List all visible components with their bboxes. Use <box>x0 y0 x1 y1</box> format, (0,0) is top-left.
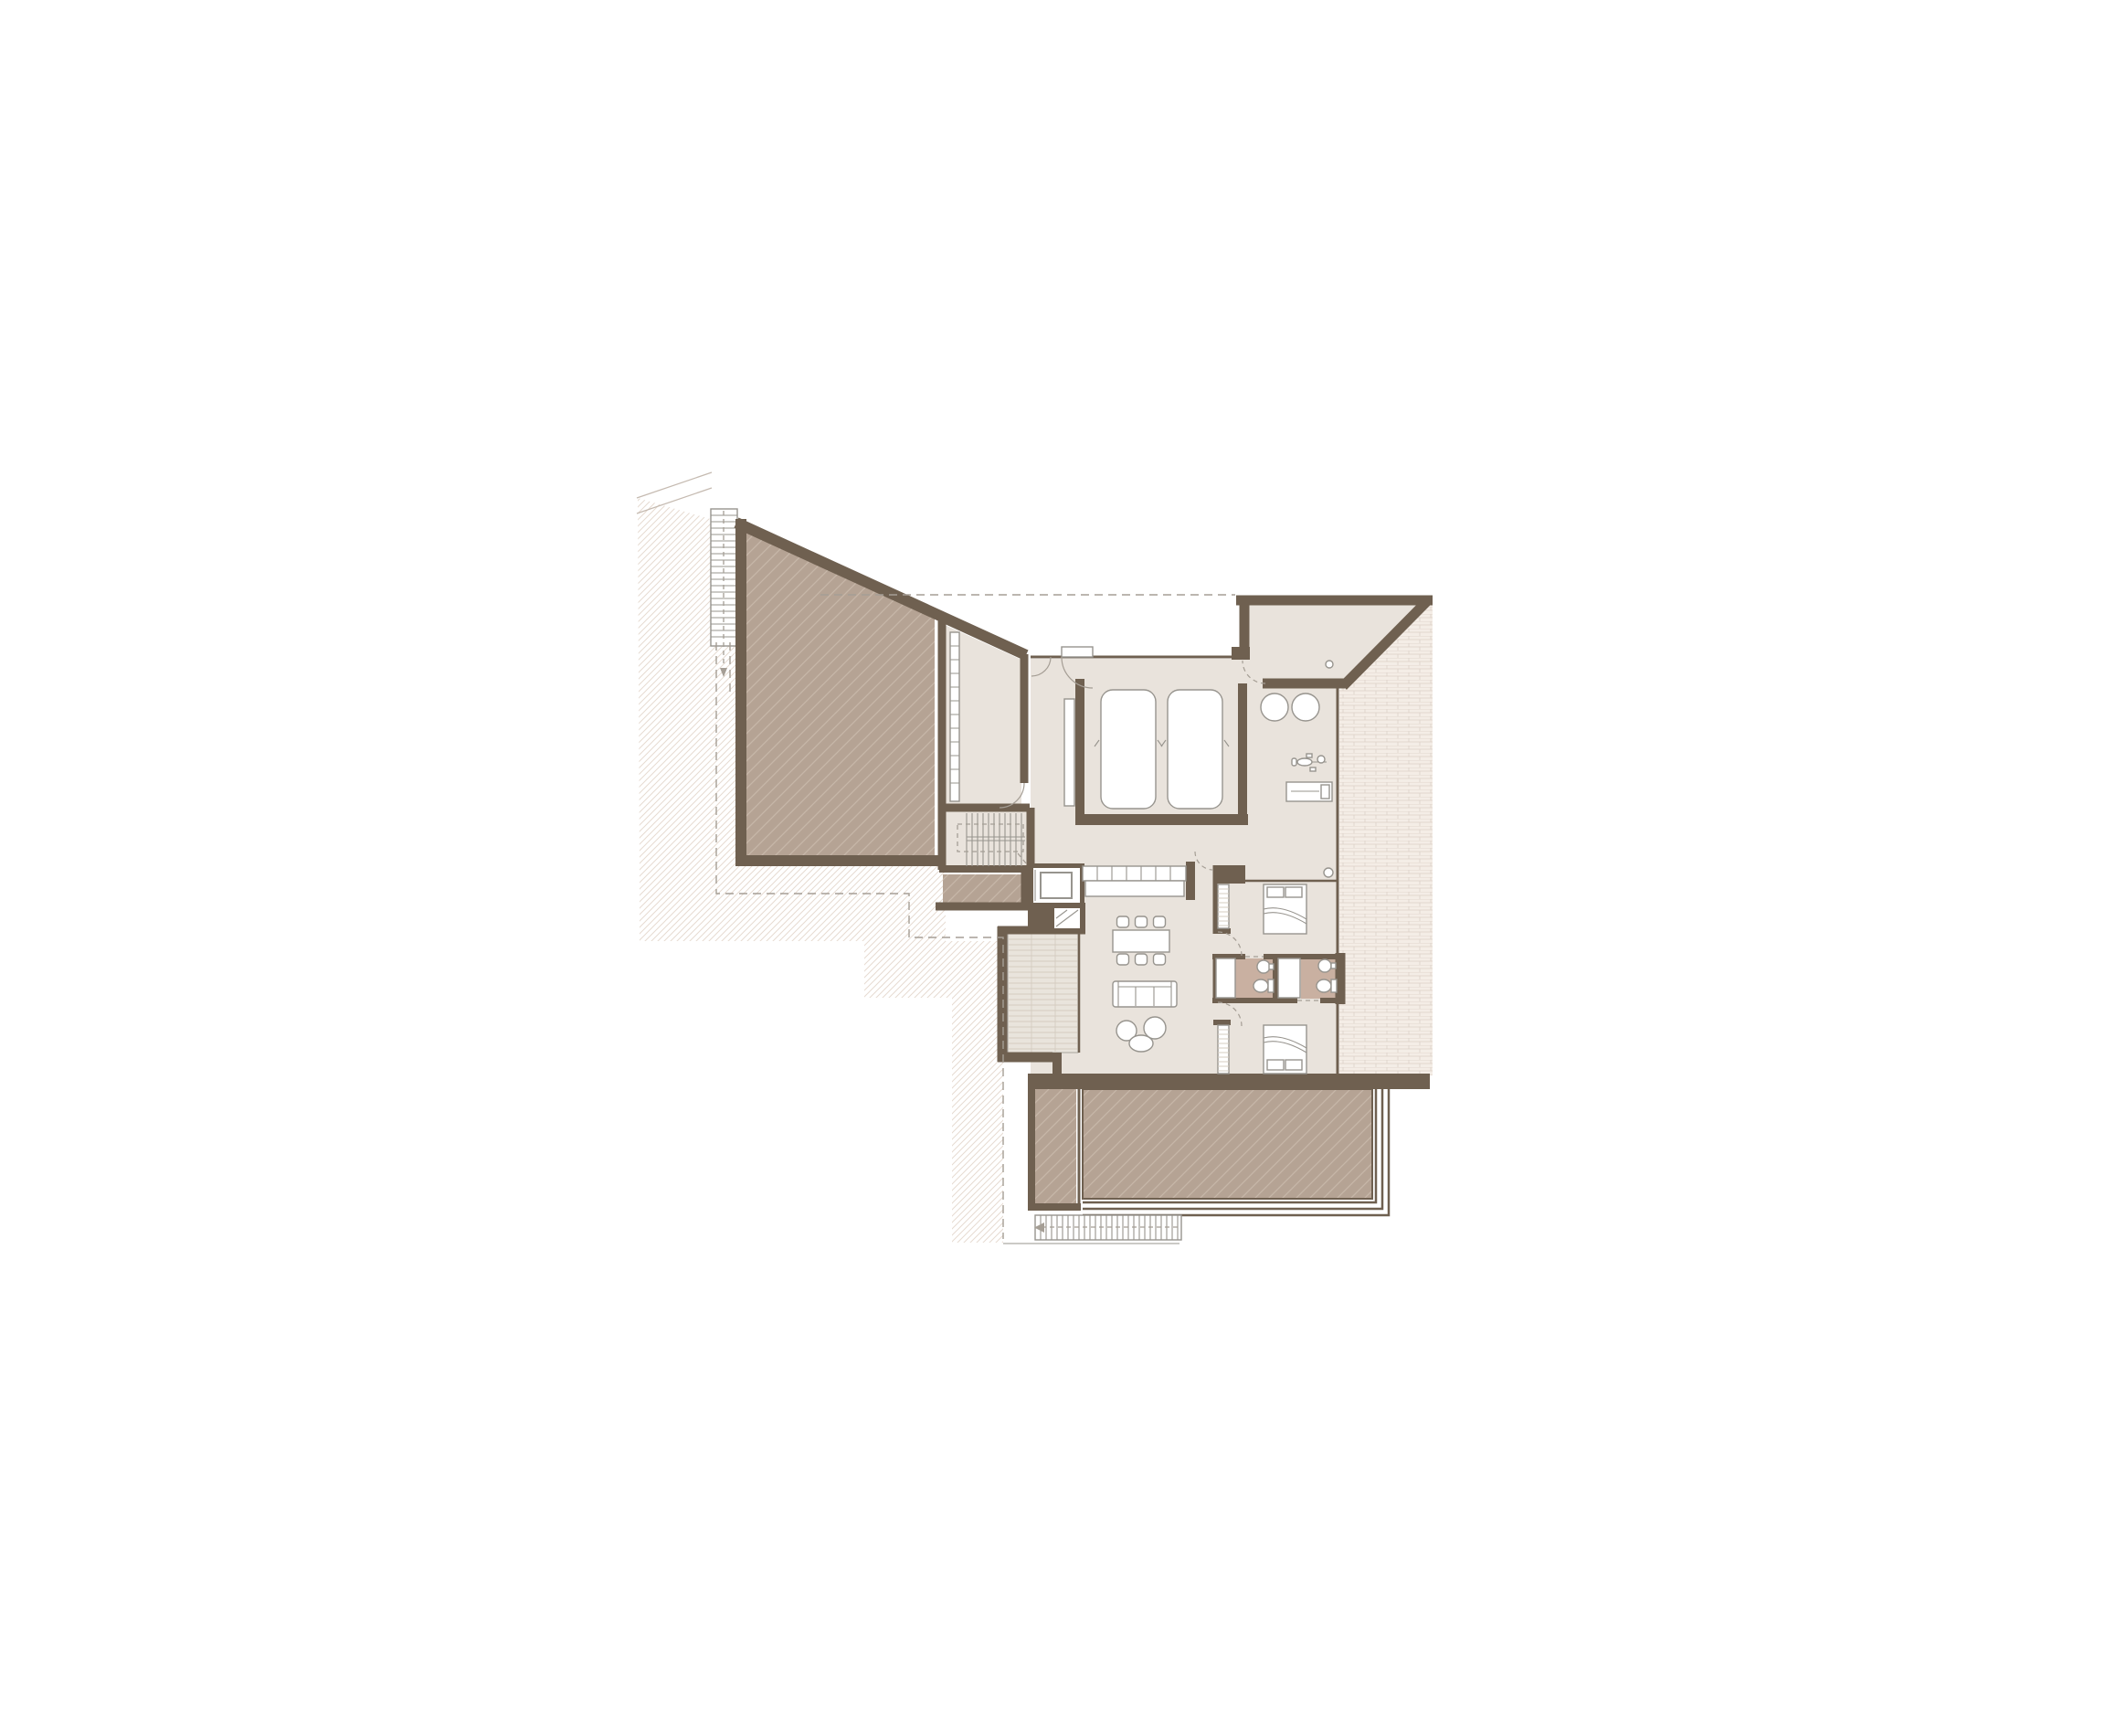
toilet-icon <box>1317 979 1337 992</box>
lounge-chair-icon <box>1144 1017 1166 1039</box>
wardrobe-icon <box>1064 699 1074 806</box>
dining-chair-icon <box>1117 916 1129 927</box>
car-icon <box>1168 690 1222 809</box>
shelf-icon <box>950 632 959 801</box>
coffee-table-icon <box>1129 1035 1153 1052</box>
storage-room-fittings <box>950 632 959 801</box>
car-icon <box>1101 690 1156 809</box>
dining-chair-icon <box>1117 954 1129 965</box>
dining-chair-icon <box>1136 954 1148 965</box>
balcony <box>1008 934 1078 1053</box>
shower-icon <box>1278 958 1300 998</box>
elevator-icon <box>1041 873 1072 898</box>
stair-hall-floor <box>944 808 1031 869</box>
lower-deck-terrace <box>1083 1089 1372 1199</box>
wall-kitchen-stub <box>1186 862 1195 900</box>
balcony-deck <box>1008 934 1078 1053</box>
glass-block <box>1054 908 1080 928</box>
drain-icon <box>1326 661 1333 668</box>
wall-gym-bottom-block <box>1213 865 1245 884</box>
dining-table-icon <box>1113 930 1169 952</box>
bed-icon <box>1264 884 1306 934</box>
shower-icon <box>1216 958 1235 998</box>
door-icon <box>1062 647 1093 657</box>
closet1-cap <box>1213 928 1231 934</box>
wall-south <box>1028 1074 1430 1089</box>
floor-plan-canvas <box>0 0 2105 1736</box>
balcony-boards <box>1009 939 1078 1049</box>
workout-bench-icon <box>1286 782 1332 801</box>
toilet-icon <box>1253 979 1274 992</box>
round-stool-icon <box>1292 693 1319 721</box>
bed-icon <box>1264 1025 1306 1074</box>
dining-chair-icon <box>1154 916 1166 927</box>
dining-chair-icon <box>1136 916 1148 927</box>
elevator <box>1033 868 1080 903</box>
lower-deck-left <box>1035 1089 1076 1206</box>
wardrobe-icon <box>1218 884 1229 928</box>
column-icon <box>1324 868 1333 877</box>
kitchen <box>1083 866 1186 896</box>
kitchen-island-icon <box>1085 881 1184 896</box>
sofa-icon <box>1113 981 1177 1007</box>
dining-chair-icon <box>1154 954 1166 965</box>
round-stool-icon <box>1261 693 1288 721</box>
closet2-cap <box>1213 1020 1231 1025</box>
small-deck-strip <box>943 874 1021 903</box>
ground-hatch-lower-band <box>640 866 946 941</box>
